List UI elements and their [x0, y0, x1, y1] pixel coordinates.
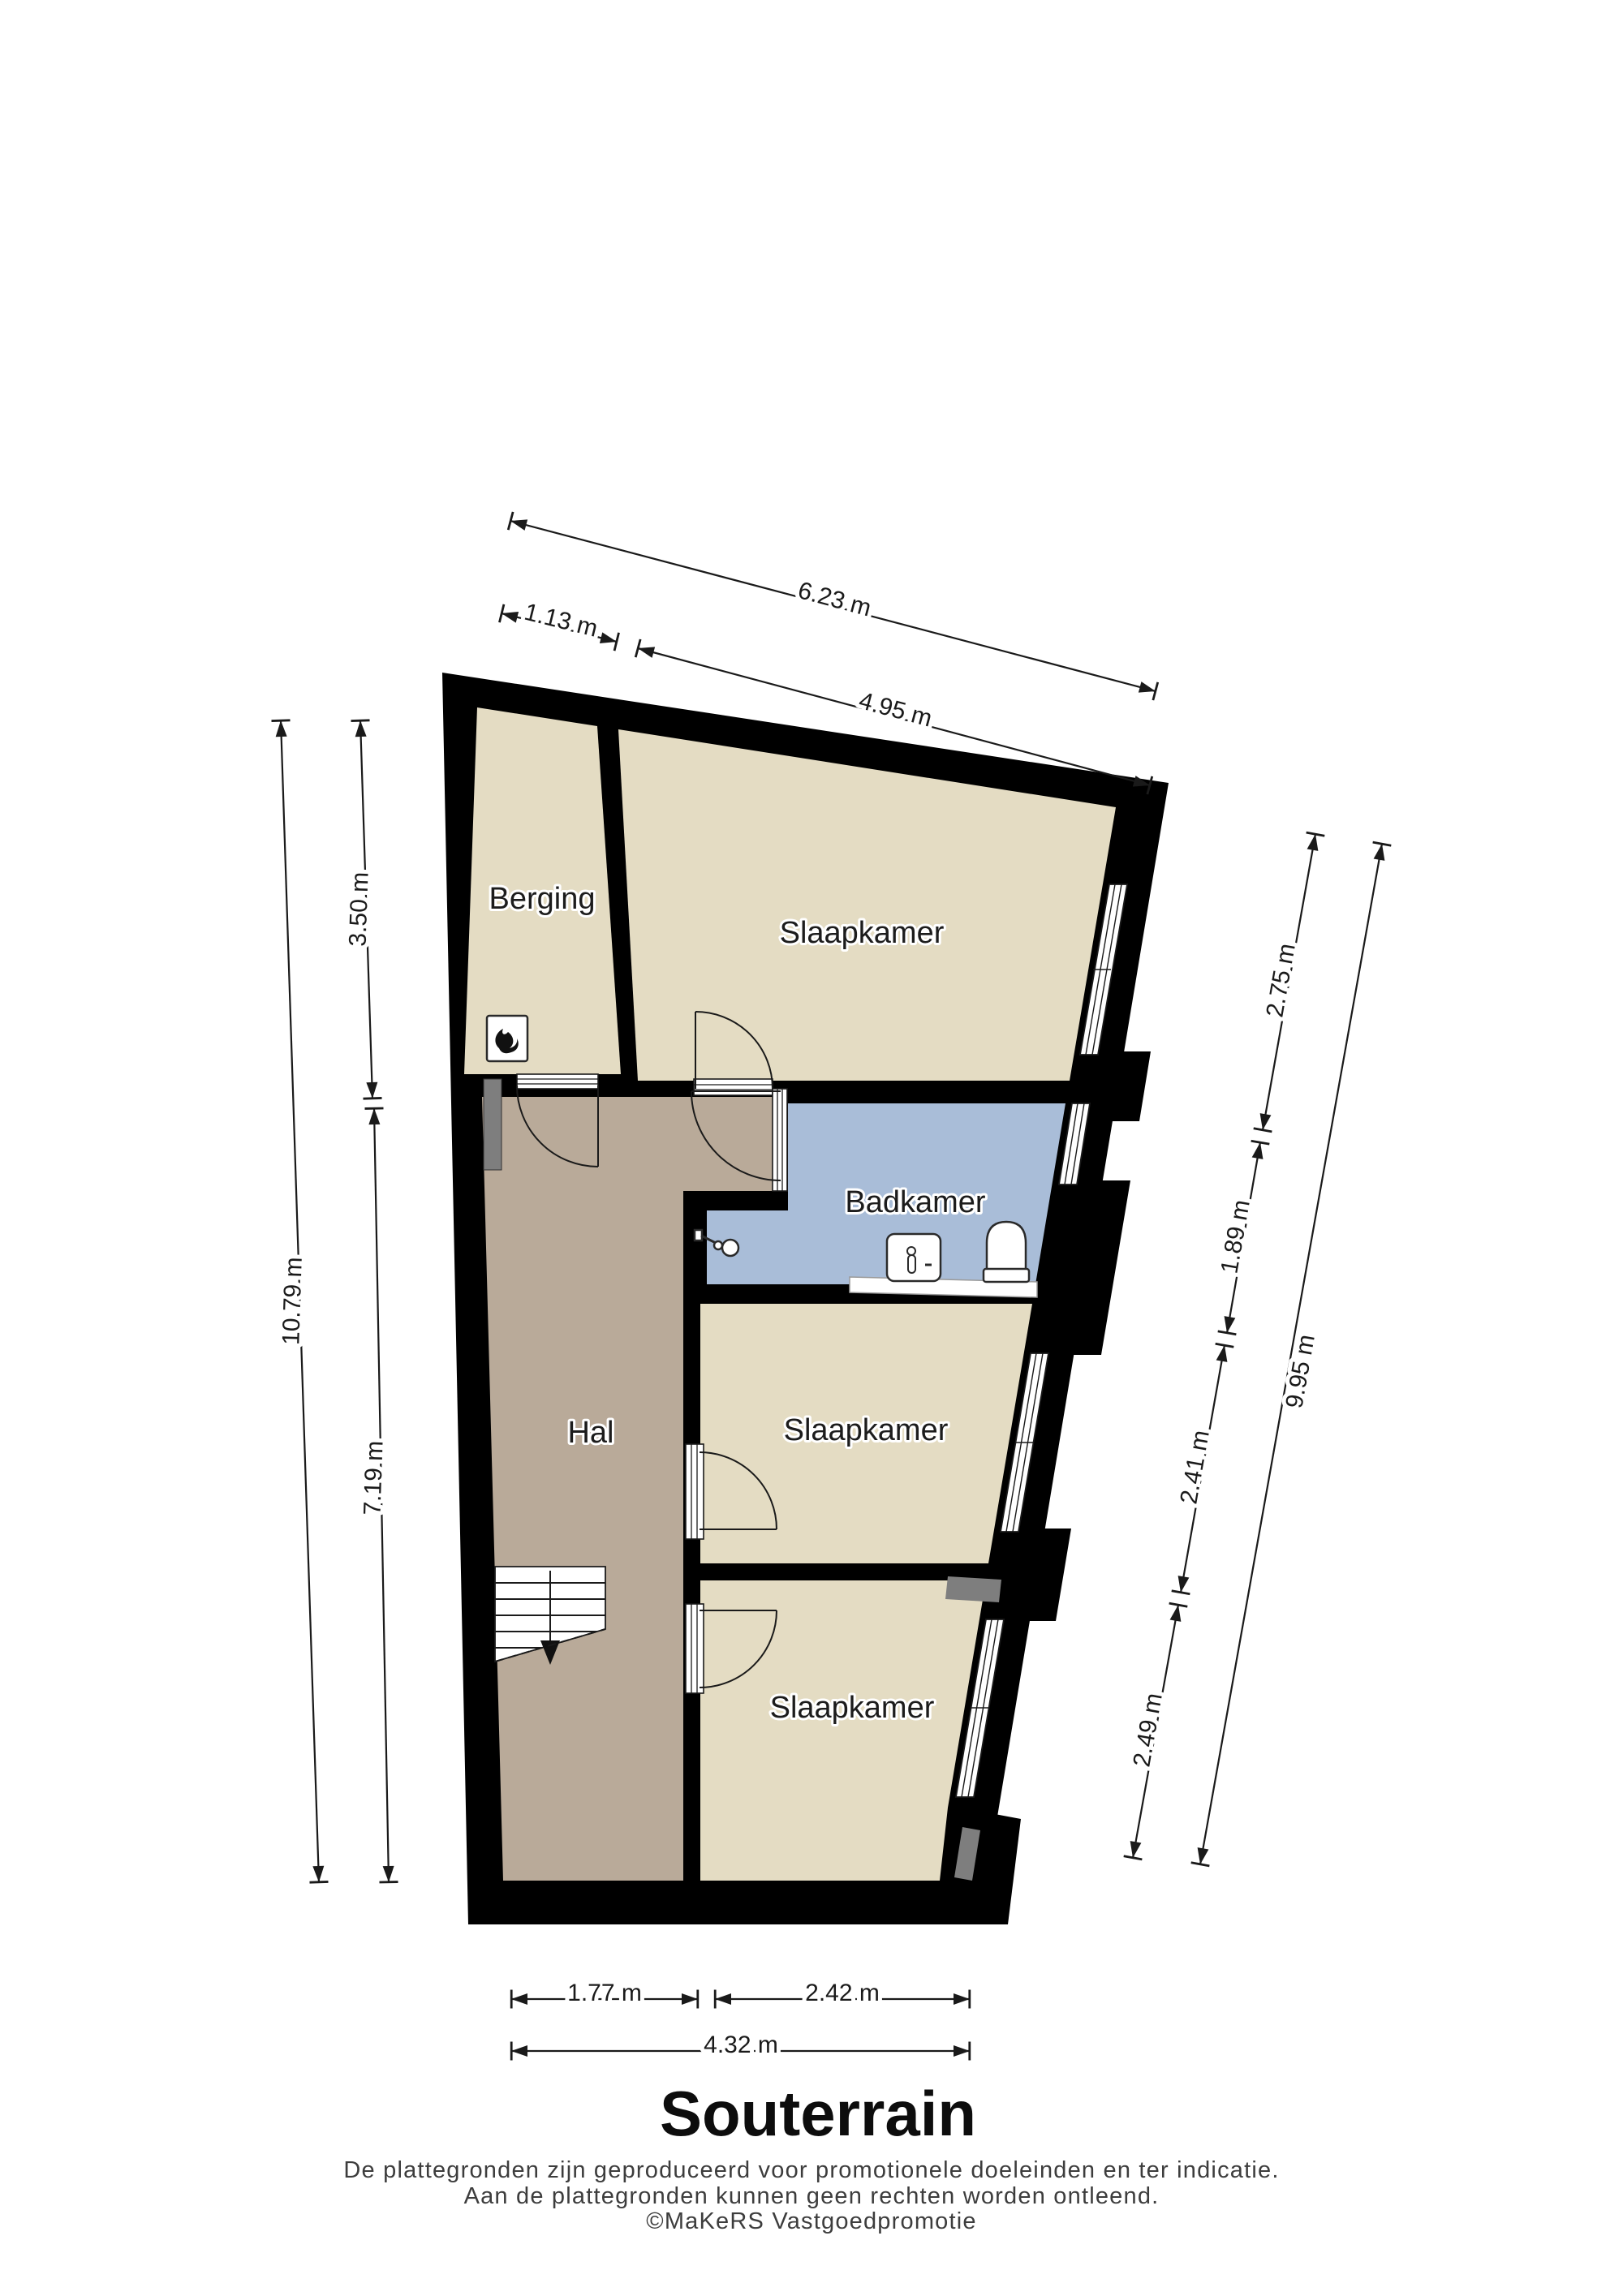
- floorplan-canvas: Berging Slaapkamer Badkamer Hal Slaapkam…: [0, 0, 1623, 2296]
- dim-bottom-slaapkamer: 2.42 m: [805, 1980, 880, 2006]
- wall-chunk-corner: [940, 1804, 1021, 1924]
- disclaimer-line-1: De plattegronden zijn geproduceerd voor …: [343, 2157, 1279, 2183]
- room-label-slaapkamer-mid: Slaapkamer: [784, 1413, 949, 1447]
- disclaimer-line-2: Aan de plattegronden kunnen geen rechten…: [464, 2183, 1160, 2209]
- dim-right-total: 9.95 m: [1281, 1332, 1319, 1410]
- dim-left-total: 10.79 m: [278, 1257, 308, 1345]
- dim-left-lower: 7.19 m: [359, 1440, 388, 1516]
- dim-right-seg-2: 2.41 m: [1175, 1428, 1214, 1506]
- dim-top-total: 6.23 m: [795, 577, 874, 621]
- room-label-berging: Berging: [489, 882, 596, 916]
- dim-right-seg-3: 2.49 m: [1128, 1691, 1167, 1769]
- wall-niche-divider: [945, 1576, 1001, 1602]
- page-title: Souterrain: [660, 2078, 976, 2149]
- dim-bottom-hal: 1.77 m: [567, 1980, 642, 2006]
- boiler-icon: [487, 1016, 527, 1061]
- building: Berging Slaapkamer Badkamer Hal Slaapkam…: [442, 673, 1169, 1924]
- room-label-slaapkamer-bottom: Slaapkamer: [770, 1691, 935, 1725]
- floorplan-page: Berging Slaapkamer Badkamer Hal Slaapkam…: [0, 0, 1623, 2296]
- wall-niche-left: [484, 1079, 502, 1170]
- toilet-icon: [984, 1222, 1029, 1282]
- room-label-hal: Hal: [567, 1416, 613, 1450]
- dim-right-seg-1: 1.89 m: [1216, 1197, 1255, 1275]
- room-floor-slaapkamer-bottom: [700, 1580, 986, 1881]
- dim-left-upper: 3.50 m: [344, 871, 373, 947]
- room-label-slaapkamer-top: Slaapkamer: [780, 916, 945, 950]
- dim-top-berging: 1.13 m: [522, 599, 601, 643]
- dim-top-slaapkamer: 4.95 m: [856, 687, 935, 733]
- sink-icon: [887, 1234, 941, 1281]
- disclaimer-line-3: ©MaKeRS Vastgoedpromotie: [646, 2208, 977, 2234]
- dim-bottom-total: 4.32 m: [704, 2032, 778, 2058]
- dim-right-seg-0: 2.75 m: [1261, 941, 1300, 1019]
- room-label-badkamer: Badkamer: [845, 1185, 986, 1219]
